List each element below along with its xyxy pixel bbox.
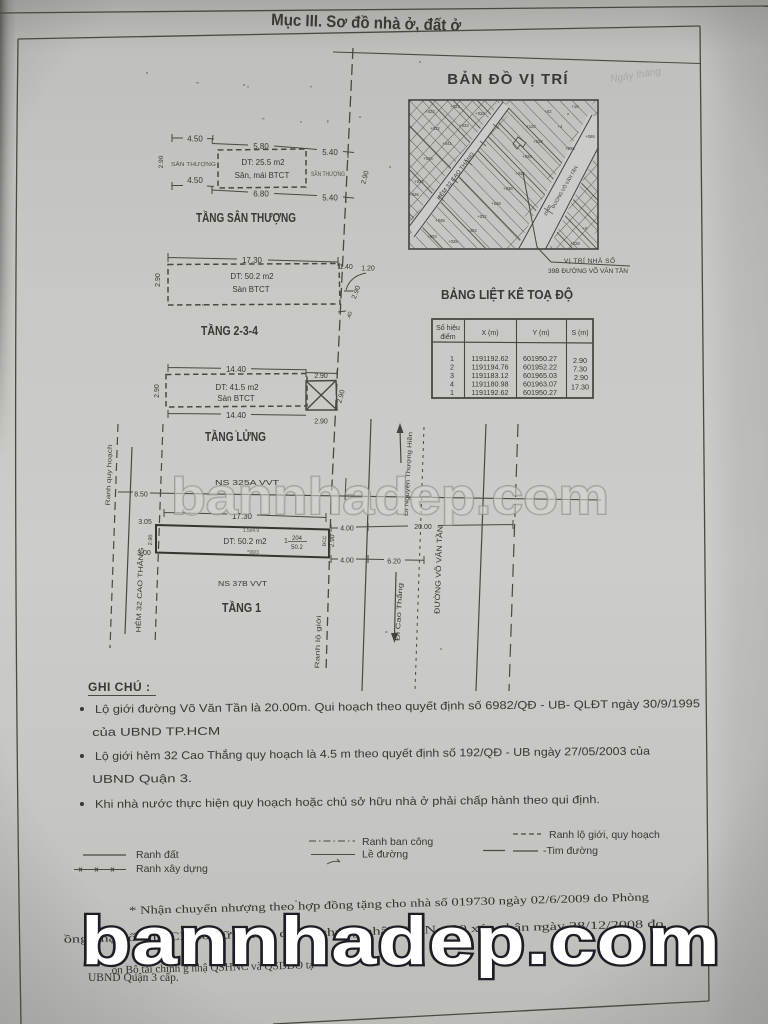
svg-text:1191192.62: 1191192.62 [472,388,509,397]
svg-text:2.90: 2.90 [574,373,588,382]
svg-text:1.5x4.9: 1.5x4.9 [243,528,260,534]
svg-text:SÂN THƯỢNG: SÂN THƯỢNG [171,161,216,168]
svg-text:+032: +032 [477,214,487,219]
svg-text:17.30: 17.30 [571,383,589,392]
svg-text:8.50: 8.50 [134,492,148,499]
svg-text:+02: +02 [544,109,552,114]
svg-text:TẦNG 2-3-4: TẦNG 2-3-4 [201,323,258,338]
svg-text:Ranh ban công: Ranh ban công [362,836,433,848]
svg-text:2.90: 2.90 [314,419,328,426]
svg-text:Ranh lộ giới, quy hoạch: Ranh lộ giới, quy hoạch [549,829,660,841]
svg-text:+032: +032 [430,126,440,131]
svg-text:4.00: 4.00 [340,526,354,533]
svg-text:NS 37B VVT: NS 37B VVT [218,579,267,588]
svg-text:DT: 50.2 m2: DT: 50.2 m2 [230,272,274,281]
svg-text:2.90: 2.90 [158,155,165,168]
svg-text:Ranh xây dựng: Ranh xây dựng [136,863,208,875]
svg-text:+068: +068 [585,134,595,139]
svg-text:14.40: 14.40 [226,365,247,374]
svg-text:+028: +028 [475,111,485,116]
svg-text:TẦNG SÂN THƯỢNG: TẦNG SÂN THƯỢNG [196,210,296,225]
svg-text:+088: +088 [565,146,575,151]
svg-text:4.50: 4.50 [187,176,203,185]
svg-text:điểm: điểm [440,333,455,341]
svg-text:+036: +036 [423,156,433,161]
svg-text:5.40: 5.40 [322,148,338,157]
svg-text:601950.27: 601950.27 [523,388,557,397]
svg-text:+028: +028 [448,239,458,244]
svg-text:+036: +036 [503,186,513,191]
svg-text:+402: +402 [467,228,477,233]
svg-text:TẦNG LỬNG: TẦNG LỬNG [205,429,266,444]
svg-text:2.90: 2.90 [154,384,161,398]
svg-text:Ranh đất: Ranh đất [136,849,179,861]
svg-text:6.80: 6.80 [253,190,269,199]
svg-text:ĐCC: ĐCC [322,535,329,547]
svg-text:+028: +028 [533,139,543,144]
svg-text:+4: +4 [558,124,563,129]
svg-text:2.90: 2.90 [314,373,328,380]
svg-text:3.05: 3.05 [138,519,152,526]
svg-text:1: 1 [450,388,454,397]
svg-text:Y (m): Y (m) [533,330,550,337]
svg-text:4.00: 4.00 [340,558,354,565]
svg-text:1: 1 [284,538,288,545]
svg-text:+128: +128 [526,124,536,129]
svg-text:14.40: 14.40 [226,411,247,420]
svg-text:3.00: 3.00 [137,550,151,557]
svg-text:+003: +003 [427,234,437,239]
svg-text:+048: +048 [435,218,445,223]
svg-text:DT: 50.2 m2: DT: 50.2 m2 [223,537,267,546]
svg-text:+033: +033 [459,123,469,128]
svg-text:UBND Quận 3.: UBND Quận 3. [92,773,192,786]
svg-text:của UBND TP.HCM: của UBND TP.HCM [92,726,220,739]
svg-text:BẢNG LIỆT KÊ TOẠ ĐỘ: BẢNG LIỆT KÊ TOẠ ĐỘ [441,287,573,302]
svg-text:X (m): X (m) [481,330,498,337]
svg-text:BẢN ĐỒ VỊ TRÍ: BẢN ĐỒ VỊ TRÍ [447,70,568,88]
svg-text:Sàn BTCT: Sàn BTCT [217,394,254,403]
svg-text:bannhadep.com: bannhadep.com [81,903,721,979]
svg-text:2.90: 2.90 [155,273,162,287]
svg-text:DT: 41.5 m2: DT: 41.5 m2 [215,383,259,392]
svg-text:4.50: 4.50 [187,135,203,144]
svg-text:+038: +038 [491,201,501,206]
svg-text:50.2: 50.2 [291,545,303,551]
svg-text:Sân, mái BTCT: Sân, mái BTCT [235,171,290,180]
svg-text:6.20: 6.20 [387,559,401,566]
svg-text:*99/3: *99/3 [247,550,259,556]
svg-text:+022: +022 [414,179,424,184]
svg-text:DT: 25.5 m2: DT: 25.5 m2 [241,158,285,167]
svg-text:+028: +028 [522,154,532,159]
svg-text:2.90: 2.90 [148,534,155,545]
svg-text:+0: +0 [583,226,588,231]
svg-text:Sàn BTCT: Sàn BTCT [232,285,269,294]
svg-text:TẦNG 1: TẦNG 1 [222,600,261,615]
svg-text:1.20: 1.20 [361,266,375,273]
svg-text:GHI CHÚ :: GHI CHÚ : [88,679,151,694]
svg-text:bannhadep.com: bannhadep.com [171,468,609,526]
svg-text:SÂN THƯỢNG: SÂN THƯỢNG [311,171,345,178]
svg-text:-Tim đường: -Tim đường [543,845,598,857]
svg-text:Lề đường: Lề đường [362,849,408,861]
svg-text:+023: +023 [450,104,460,109]
svg-text:+041: +041 [442,141,452,146]
svg-text:Số hiệu: Số hiệu [436,323,460,332]
svg-text:+18: +18 [571,104,579,109]
svg-text:+028: +028 [570,241,580,246]
svg-text:1.40: 1.40 [339,264,353,271]
svg-text:+022: +022 [425,109,435,114]
svg-text:S (m): S (m) [571,330,588,337]
svg-text:+028: +028 [409,192,419,197]
svg-text:5.40: 5.40 [322,194,338,203]
